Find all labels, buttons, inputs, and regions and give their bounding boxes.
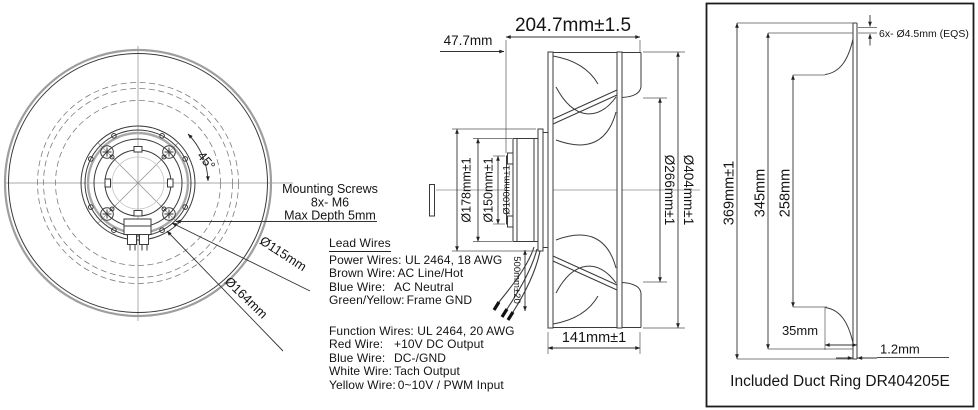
inlet-dia-label: Ø266mm±1 [662, 155, 677, 225]
duct-ring-caption: Included Duct Ring DR404205E [730, 373, 950, 390]
wire-row-brown: Brown Wire: AC Line/Hot [329, 267, 515, 281]
mounting-screws-line1: Mounting Screws [282, 182, 378, 196]
wire-value: AC Line/Hot [397, 267, 463, 281]
wire-row-blue-ac: Blue Wire: AC Neutral [329, 281, 515, 295]
overall-depth-label: 204.7mm±1.5 [515, 15, 631, 36]
wire-row-white: White Wire: Tach Output [329, 365, 515, 379]
duct-ring-panel-border [707, 4, 974, 407]
wire-value: 0~10V / PWM Input [398, 379, 504, 393]
wire-row-yellow: Yellow Wire: 0~10V / PWM Input [329, 379, 515, 393]
mounting-screws-note: Mounting Screws 8x- M6 Max Depth 5mm [176, 182, 378, 223]
power-wires-header: Power Wires: UL 2464, 18 AWG [329, 254, 515, 268]
wire-label: Blue Wire: [329, 352, 394, 366]
terminal-connector [124, 219, 151, 251]
ring-inner-dia-label: 258mm [778, 169, 794, 217]
wire-label: Green/Yellow: [329, 294, 407, 308]
lead-wires-title: Lead Wires [329, 237, 391, 252]
wire-label: Red Wire: [329, 338, 394, 352]
front-view-drawing: 45° Ø115mm Ø164mm Mounting Screws 8x- M6… [4, 46, 378, 351]
wire-value: Tach Output [394, 365, 460, 379]
impeller-dia-label: Ø404mm±1 [681, 155, 696, 225]
wire-row-blue-dc: Blue Wire: DC-/GND [329, 352, 515, 366]
ring-bore-dia-label: 345mm [753, 169, 769, 217]
mounting-screws-line3: Max Depth 5mm [284, 209, 376, 223]
flange-depth-label: 35mm [782, 323, 818, 338]
motor-dia-label: Ø150mm±1 [482, 157, 496, 222]
dia-115-label: Ø115mm [257, 233, 309, 274]
wire-label: Brown Wire: [329, 267, 397, 281]
impeller-depth-label: 141mm±1 [562, 330, 626, 346]
hub-dia-label: Ø100mm±1 [502, 165, 513, 215]
wire-label: White Wire: [329, 365, 394, 379]
ring-outer-dia-label: 369mm±1 [722, 161, 738, 225]
wire-label: Blue Wire: [329, 281, 394, 295]
duct-ring-panel: 6x- Ø4.5mm (EQS) 369mm±1 345mm 258mm 35m… [707, 4, 974, 407]
lead-wires-section: Lead Wires Power Wires: UL 2464, 18 AWG … [329, 237, 515, 392]
function-wires-header: Function Wires: UL 2464, 20 AWG [329, 325, 515, 339]
wire-value: Frame GND [407, 294, 473, 308]
wire-value: AC Neutral [394, 281, 454, 295]
fan-technical-drawing: 45° Ø115mm Ø164mm Mounting Screws 8x- M6… [0, 0, 978, 410]
wire-label: Yellow Wire: [329, 379, 398, 393]
motor-depth-label: 47.7mm [444, 33, 493, 48]
wire-value: DC-/GND [394, 352, 446, 366]
mounting-screws-line2: 8x- M6 [311, 196, 349, 210]
wall-thickness-label: 1.2mm [880, 342, 920, 357]
dia-164-label: Ø164mm [222, 274, 271, 322]
wire-row-red: Red Wire: +10V DC Output [329, 338, 515, 352]
holes-label: 6x- Ø4.5mm (EQS) [879, 28, 969, 40]
flange-dia-label: Ø178mm±1 [460, 157, 474, 222]
wire-value: +10V DC Output [394, 338, 484, 352]
wire-row-green-yellow: Green/Yellow: Frame GND [329, 294, 515, 308]
